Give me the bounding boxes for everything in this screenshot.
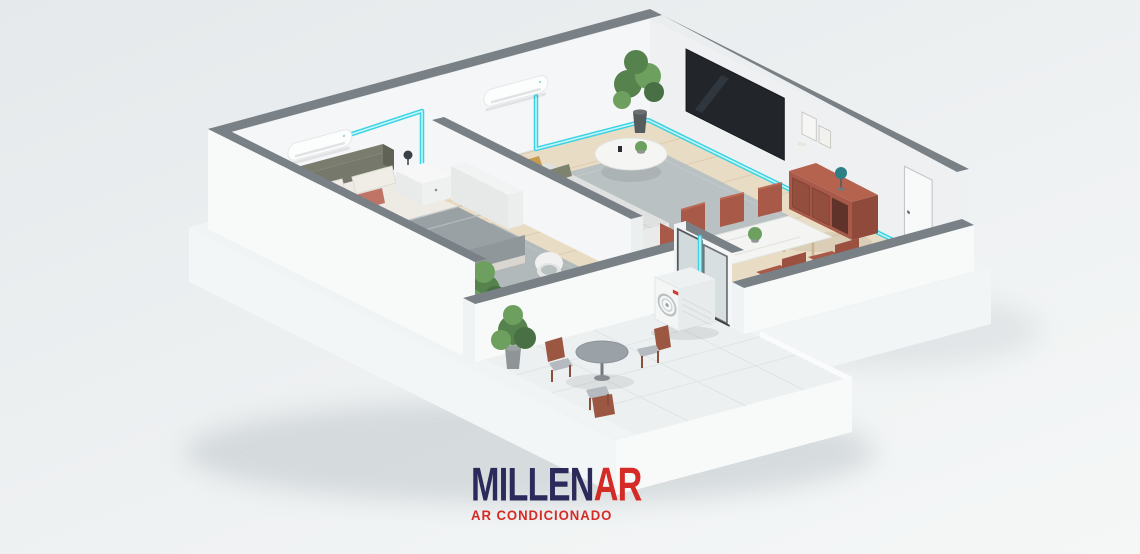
logo: MILLENAR AR CONDICIONADO — [471, 460, 695, 522]
promo-image: MILLENAR AR CONDICIONADO — [0, 0, 1140, 554]
logo-tagline: AR CONDICIONADO — [471, 508, 682, 522]
logo-word-primary: MILLEN — [471, 457, 594, 511]
coffee-table — [595, 138, 667, 182]
logo-word-accent: AR — [594, 457, 642, 511]
logo-wordmark: MILLENAR — [471, 460, 642, 508]
